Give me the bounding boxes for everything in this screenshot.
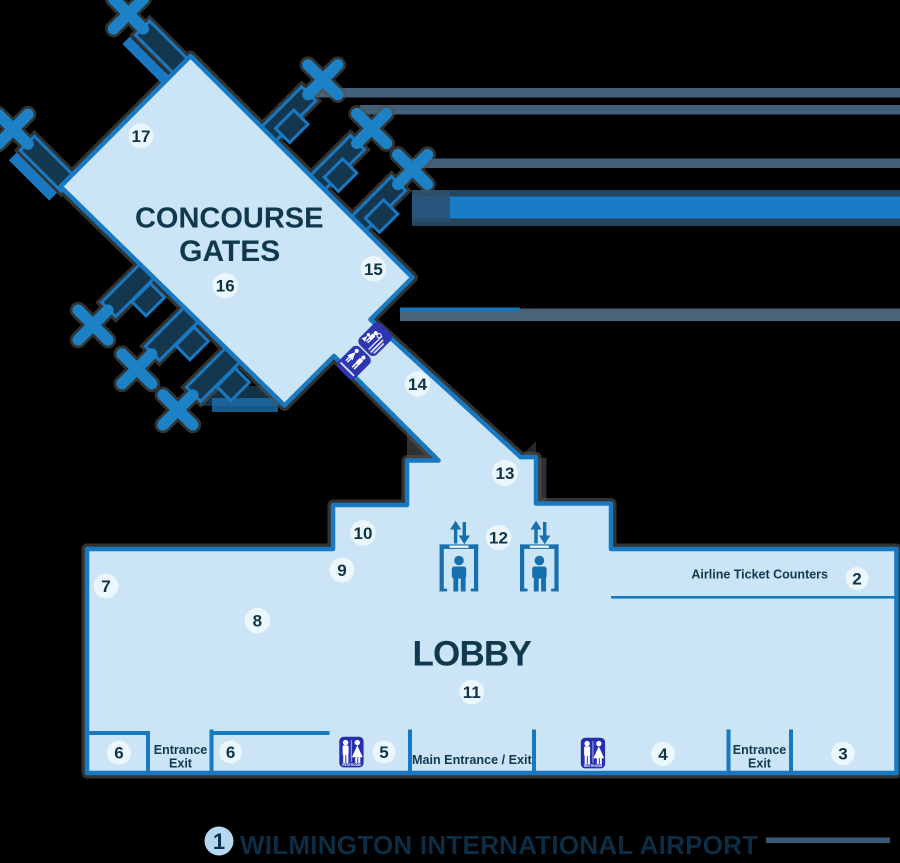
svg-text:10: 10 xyxy=(354,524,373,543)
svg-text:11: 11 xyxy=(463,683,481,702)
svg-text:CONCOURSE: CONCOURSE xyxy=(135,202,324,234)
svg-text:Main Entrance / Exit: Main Entrance / Exit xyxy=(412,753,532,767)
svg-text:Exit: Exit xyxy=(169,757,193,771)
svg-text:2: 2 xyxy=(852,570,861,589)
svg-text:6: 6 xyxy=(226,743,235,762)
svg-text:WILMINGTON INTERNATIONAL AIRPO: WILMINGTON INTERNATIONAL AIRPORT xyxy=(240,830,758,858)
svg-text:4: 4 xyxy=(658,745,668,764)
svg-text:12: 12 xyxy=(489,529,508,548)
svg-text:RESTROOM: RESTROOM xyxy=(342,763,361,767)
svg-text:6: 6 xyxy=(114,744,123,763)
svg-text:16: 16 xyxy=(216,277,235,296)
svg-text:14: 14 xyxy=(408,375,427,394)
svg-text:17: 17 xyxy=(132,127,151,146)
svg-text:9: 9 xyxy=(337,561,346,580)
svg-text:GATES: GATES xyxy=(179,235,280,268)
svg-text:13: 13 xyxy=(496,464,515,483)
svg-text:3: 3 xyxy=(838,745,847,764)
svg-text:1: 1 xyxy=(213,829,225,854)
svg-text:5: 5 xyxy=(379,743,388,762)
svg-text:15: 15 xyxy=(364,260,383,279)
svg-text:Entrance: Entrance xyxy=(154,743,208,757)
svg-text:LOBBY: LOBBY xyxy=(412,635,531,674)
svg-text:Entrance: Entrance xyxy=(733,743,787,757)
svg-text:8: 8 xyxy=(253,612,262,631)
svg-text:Exit: Exit xyxy=(748,757,772,771)
svg-text:7: 7 xyxy=(101,577,110,596)
svg-text:Airline Ticket Counters: Airline Ticket Counters xyxy=(691,568,828,582)
